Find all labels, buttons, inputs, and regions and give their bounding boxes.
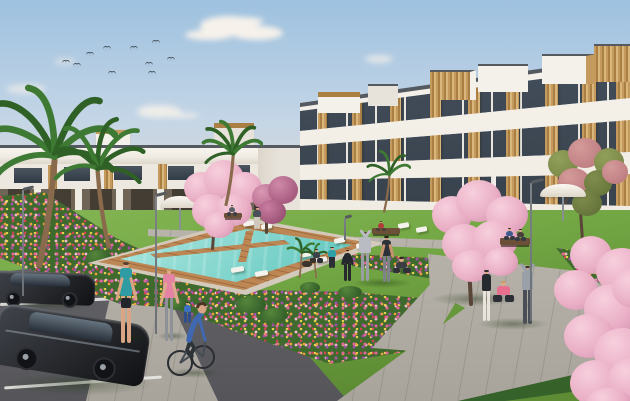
penthouse <box>478 64 528 92</box>
person-jogger-pink <box>161 269 177 341</box>
person-meditating <box>394 257 409 277</box>
penthouse <box>368 84 398 106</box>
bird <box>148 71 156 75</box>
penthouse <box>318 92 360 113</box>
person-seated-pink <box>495 281 512 308</box>
palm-tree <box>52 102 147 262</box>
bush <box>236 296 266 313</box>
bird <box>73 63 81 67</box>
street-lamp <box>155 196 157 334</box>
penthouse <box>542 54 596 84</box>
person-standing <box>480 270 493 321</box>
bird <box>62 60 70 64</box>
penthouse-timber <box>594 44 630 82</box>
penthouse-timber <box>430 70 476 100</box>
timber-panel <box>158 164 167 189</box>
palm-tree <box>201 115 263 210</box>
street-lamp <box>530 183 532 321</box>
bush <box>338 286 362 298</box>
parasol <box>540 184 586 221</box>
street-lamp <box>344 218 346 240</box>
dog <box>302 261 312 267</box>
person-exerciser <box>342 250 353 281</box>
bird <box>152 40 160 44</box>
person-bench-pair <box>516 229 525 245</box>
bird <box>130 46 138 50</box>
person-bench-sitter <box>377 221 385 234</box>
person-man-tank <box>380 236 393 282</box>
person-walker <box>252 207 262 229</box>
person-seated-dog-owner <box>311 249 322 267</box>
person-arms-raised <box>520 266 535 324</box>
bird <box>167 57 175 61</box>
person-stretching <box>357 232 373 281</box>
architectural-render <box>0 0 630 401</box>
street-lamp <box>22 190 24 296</box>
person-exerciser <box>327 247 337 268</box>
person-bench-sitter <box>228 205 236 219</box>
palm-tree <box>366 137 411 225</box>
bird <box>86 52 94 56</box>
person-bench-pair <box>505 228 514 244</box>
person-child <box>182 302 193 323</box>
person-jogger-teal <box>117 263 135 343</box>
bush <box>262 308 288 322</box>
parked-car-sedan <box>0 270 96 306</box>
bird <box>103 46 111 50</box>
bird <box>145 62 153 66</box>
